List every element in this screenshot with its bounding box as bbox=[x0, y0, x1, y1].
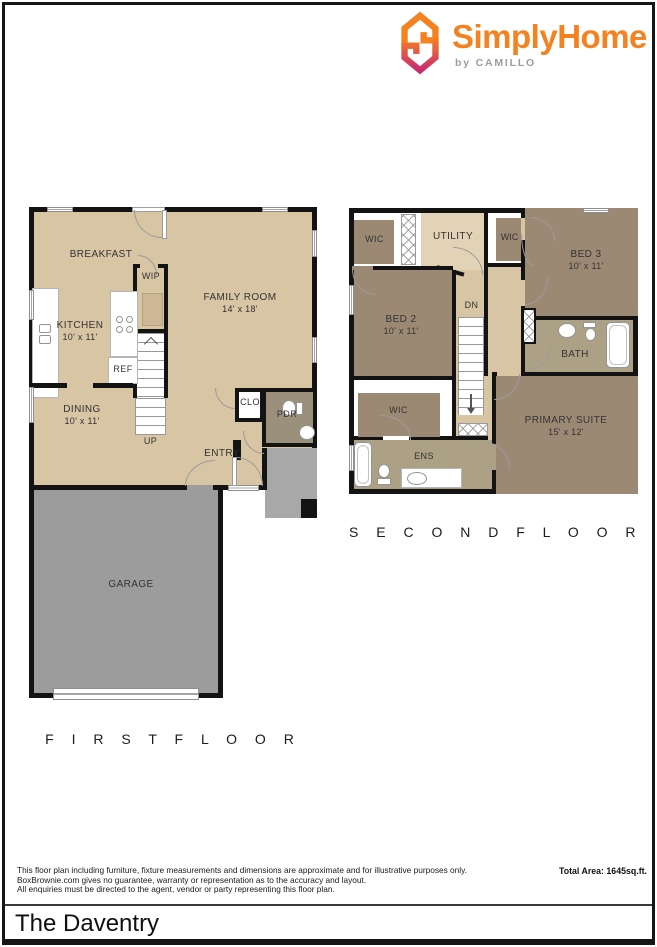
stairs-down-arrow bbox=[467, 408, 475, 414]
window bbox=[349, 285, 354, 315]
room-label-dining: DINING 10' x 11' bbox=[42, 403, 122, 428]
room-label-dn: DN bbox=[454, 300, 489, 312]
porch-corner-pillar bbox=[301, 499, 317, 518]
pantry-shelf bbox=[142, 293, 163, 326]
bathtub-fixture bbox=[606, 322, 630, 368]
floor-plan-page: SimplyHome by CAMILLO bbox=[0, 0, 657, 947]
room-label-bed3: BED 3 10' x 11' bbox=[536, 248, 636, 273]
brand-byline: by CAMILLO bbox=[455, 57, 536, 69]
window bbox=[47, 207, 73, 212]
room-label-breakfast: BREAKFAST bbox=[51, 248, 151, 261]
second-floor-plan: WIC UTILITY WIC BED 3 10' x 11' BED 2 10… bbox=[349, 208, 638, 494]
kitchen-dining-wall bbox=[29, 383, 67, 388]
bathtub-fixture bbox=[354, 442, 372, 487]
disclaimer-text: This floor plan including furniture, fix… bbox=[17, 866, 467, 895]
room-label-pdr: PDR bbox=[267, 409, 307, 421]
first-floor-plan: BREAKFAST KITCHEN 10' x 11' FAMILY ROOM … bbox=[29, 207, 317, 698]
window bbox=[262, 207, 288, 212]
room-label-entry: ENTRY bbox=[192, 447, 252, 460]
toilet-fixture bbox=[585, 328, 596, 341]
window bbox=[312, 230, 317, 257]
front-door-leaf bbox=[232, 457, 237, 486]
room-label-garage: GARAGE bbox=[81, 578, 181, 591]
room-label-kitchen: KITCHEN 10' x 11' bbox=[40, 319, 120, 344]
sink-fixture bbox=[407, 472, 427, 485]
first-floor-caption: F I R S T F L O O R bbox=[29, 731, 317, 747]
room-label-ens: ENS bbox=[399, 451, 449, 463]
kitchen-dining-wall bbox=[93, 383, 133, 388]
room-label-bath: BATH bbox=[545, 348, 605, 361]
garage-door bbox=[53, 688, 199, 700]
room-label-primary: PRIMARY SUITE 15' x 12' bbox=[496, 414, 636, 439]
disclaimer-line: All enquiries must be directed to the ag… bbox=[17, 885, 467, 895]
total-area: Total Area: 1645sq.ft. bbox=[447, 866, 647, 876]
room-label-utility: UTILITY bbox=[413, 230, 493, 243]
room-label-wic2: WIC bbox=[492, 232, 527, 244]
garage-room bbox=[29, 485, 223, 698]
stair-wall-left bbox=[452, 270, 456, 440]
stair-void-hatch bbox=[458, 423, 488, 436]
window bbox=[29, 387, 34, 423]
wic2-wall bbox=[488, 263, 525, 267]
room-label-wip: WIP bbox=[137, 271, 165, 283]
brand-name: SimplyHome bbox=[452, 18, 647, 56]
toilet-fixture bbox=[378, 464, 390, 478]
linen-closet bbox=[522, 308, 536, 344]
vanity-counter bbox=[401, 468, 462, 488]
room-label-wic1: WIC bbox=[357, 234, 392, 246]
simplyhome-logo-icon bbox=[400, 11, 440, 75]
stair-wall-right bbox=[484, 270, 488, 376]
room-label-ref: REF bbox=[109, 364, 137, 376]
toilet-tank bbox=[377, 478, 391, 485]
plan-name: The Daventry bbox=[15, 910, 159, 938]
stove-burner bbox=[126, 316, 133, 323]
room-label-bed2: BED 2 10' x 11' bbox=[351, 313, 451, 338]
window bbox=[312, 337, 317, 363]
title-divider bbox=[5, 904, 652, 906]
ensuite-room bbox=[354, 440, 492, 489]
window bbox=[349, 445, 354, 471]
stove-burner bbox=[126, 326, 133, 333]
rear-door-leaf bbox=[162, 210, 167, 239]
room-label-wic3: WIC bbox=[381, 405, 416, 417]
window bbox=[29, 290, 34, 320]
stairs-up-open bbox=[135, 398, 166, 435]
room-label-up: UP bbox=[133, 436, 168, 448]
room-label-clo: CLO bbox=[236, 397, 264, 409]
sink-fixture bbox=[558, 323, 576, 338]
second-floor-caption: S E C O N D F L O O R bbox=[349, 524, 638, 540]
window bbox=[583, 208, 609, 213]
room-label-family-room: FAMILY ROOM 14' x 18' bbox=[190, 291, 290, 316]
sink-fixture bbox=[299, 425, 315, 440]
